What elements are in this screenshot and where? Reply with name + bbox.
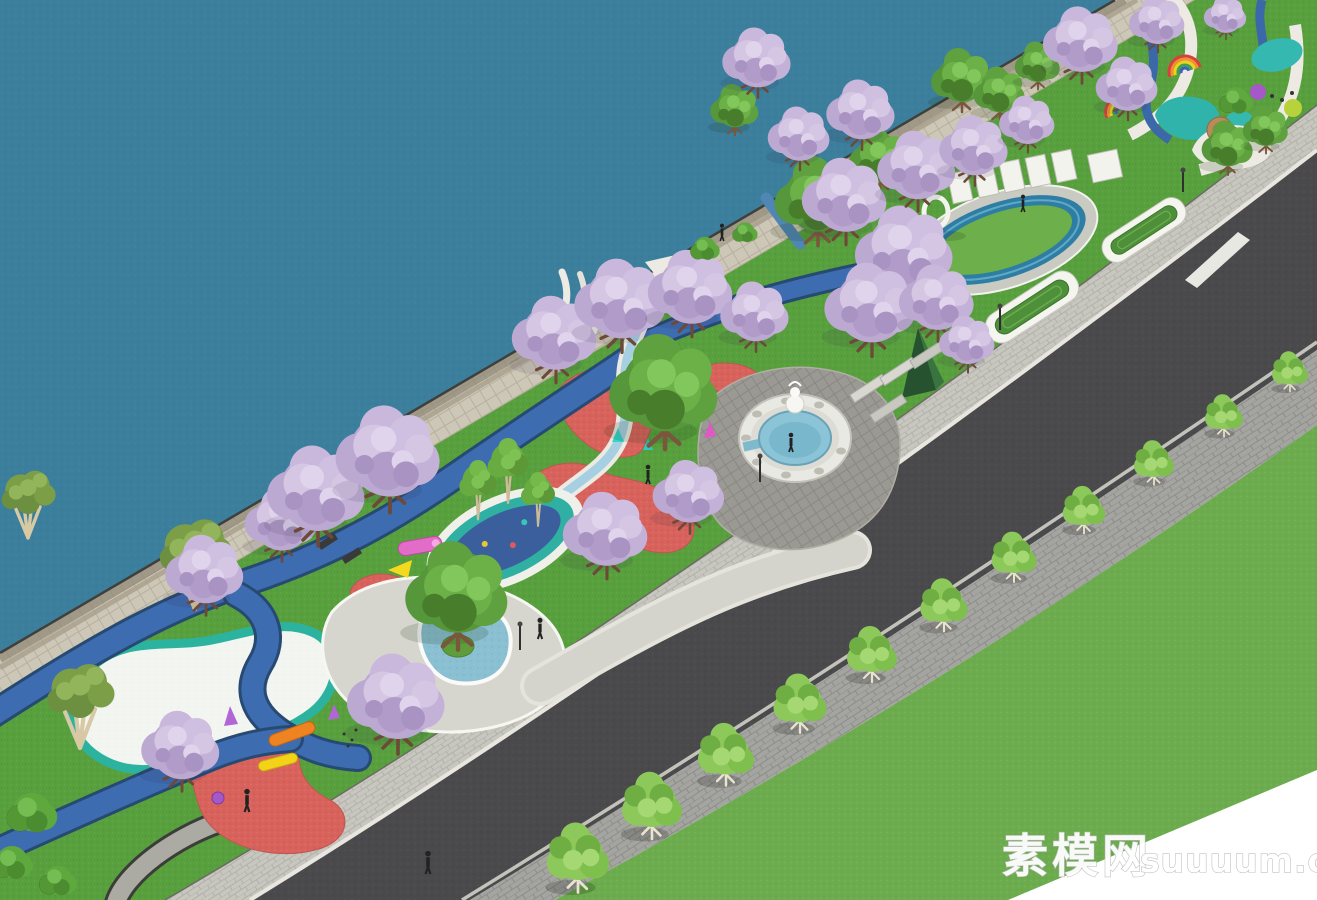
fountain-pool-deep bbox=[769, 422, 821, 458]
fountain-sculpture-top bbox=[790, 387, 800, 397]
play-structure-green bbox=[1284, 99, 1302, 117]
purple-drum bbox=[212, 792, 224, 804]
play-structure-purple bbox=[1250, 84, 1266, 100]
watermark-logo-text: 素模网 bbox=[1002, 829, 1152, 883]
park-render-canvas: 素模网 suuuum.com bbox=[0, 0, 1317, 900]
rendered-image: 素模网 suuuum.com bbox=[0, 0, 1317, 900]
watermark-site-text: suuuum.com bbox=[1140, 841, 1317, 880]
fountain-sculpture bbox=[786, 395, 804, 413]
